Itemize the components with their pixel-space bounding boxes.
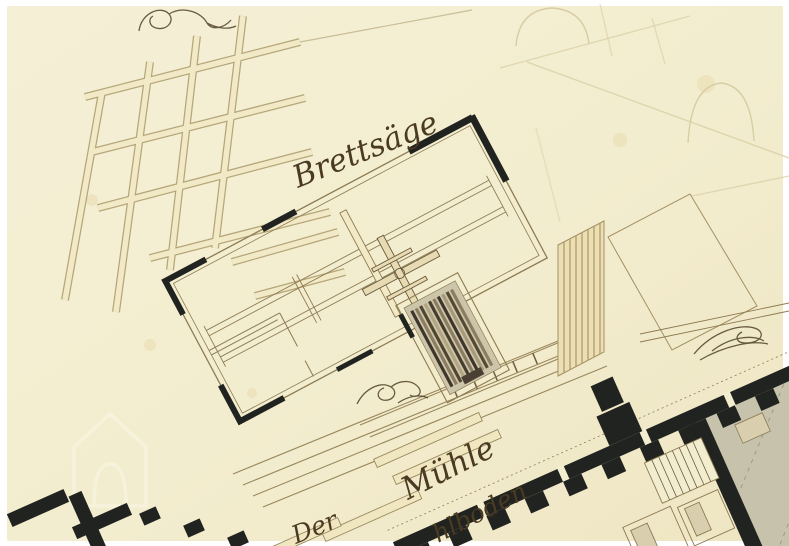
flume-planks (564, 223, 600, 373)
site-plan-scan: Brettsäge Mühle Der hlboden (0, 0, 789, 546)
scanned-plan-page: Brettsäge Mühle Der hlboden (0, 0, 789, 546)
